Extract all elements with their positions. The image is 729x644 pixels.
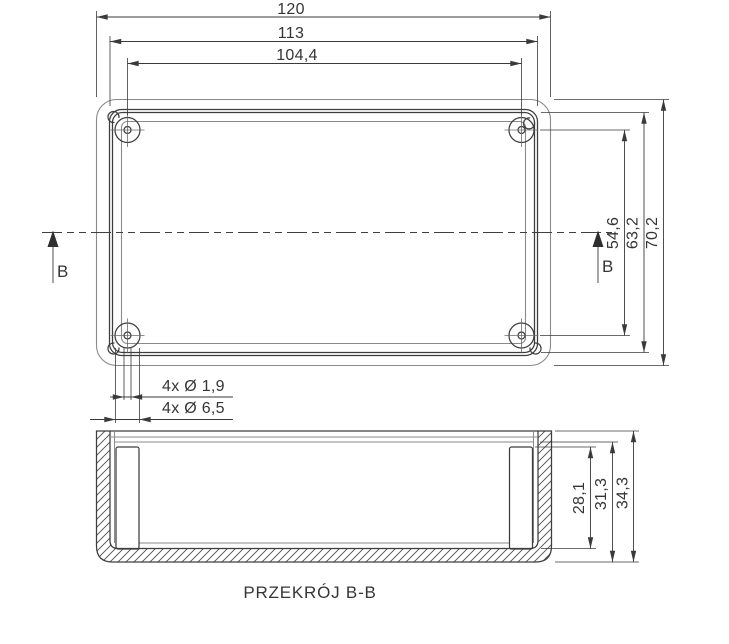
section-view (97, 431, 552, 562)
dim-text-outer-height: 70,2 (644, 217, 661, 249)
section-cut-marker-left: B (48, 231, 69, 284)
screw-boss-bottom-left (108, 319, 145, 355)
section-marker-label: B (602, 257, 613, 276)
dim-text-hole-spacing-v: 54,6 (605, 217, 622, 249)
screw-boss-top-left (108, 111, 145, 147)
section-hatching (97, 431, 552, 562)
boss-lip-notch (530, 343, 541, 354)
dim-text-lip-width: 113 (278, 25, 304, 42)
section-outer-profile (97, 431, 552, 562)
section-marker-label: B (57, 262, 68, 281)
plan-view (42, 100, 612, 366)
dim-text-lip-height: 63,2 (625, 217, 642, 249)
dim-text-hole-spacing: 104,4 (276, 47, 318, 64)
hole-note-small: 4x Ø 1,9 (162, 378, 225, 395)
section-arrow-head (593, 231, 604, 248)
section-boss-right (510, 447, 533, 549)
section-title: PRZEKRÓJ B-B (243, 583, 376, 602)
plan-outer-edge (97, 100, 551, 366)
technical-drawing-canvas: 120 113 104,4 54,6 63,2 70,2 B B (0, 0, 729, 644)
dim-text-outer-width: 120 (277, 1, 305, 18)
section-inner-profile (110, 431, 538, 549)
plan-horizontal-dimensions: 120 113 104,4 (97, 1, 551, 115)
dim-text-total-height: 34,3 (615, 477, 632, 509)
dim-text-inner-depth: 28,1 (571, 482, 588, 514)
section-boss-left (116, 447, 139, 549)
section-arrow-head (48, 231, 59, 248)
hole-callouts: 4x Ø 1,9 4x Ø 6,5 (90, 348, 233, 423)
drawing-svg: 120 113 104,4 54,6 63,2 70,2 B B (0, 0, 729, 644)
hole-note-large: 4x Ø 6,5 (162, 400, 225, 417)
dim-text-step-height: 31,3 (593, 478, 610, 510)
screw-boss-bottom-right (505, 319, 542, 355)
